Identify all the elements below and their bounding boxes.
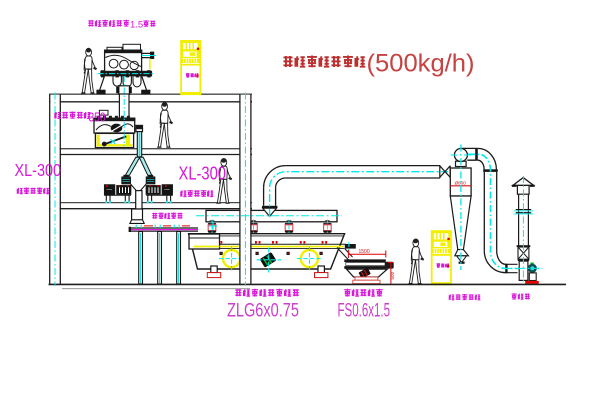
svg-text:ZLG6x0.75: ZLG6x0.75 xyxy=(227,300,299,322)
svg-text:1.5: 1.5 xyxy=(130,19,143,30)
svg-text:XL-300: XL-300 xyxy=(179,164,227,184)
svg-text:1500: 1500 xyxy=(359,249,370,255)
svg-text:XL-300: XL-300 xyxy=(15,160,62,180)
svg-text:500: 500 xyxy=(390,271,395,279)
svg-text:350: 350 xyxy=(89,111,106,125)
svg-text:(500kg/h): (500kg/h) xyxy=(367,50,475,78)
svg-text:FS0.6x1.5: FS0.6x1.5 xyxy=(338,300,391,322)
